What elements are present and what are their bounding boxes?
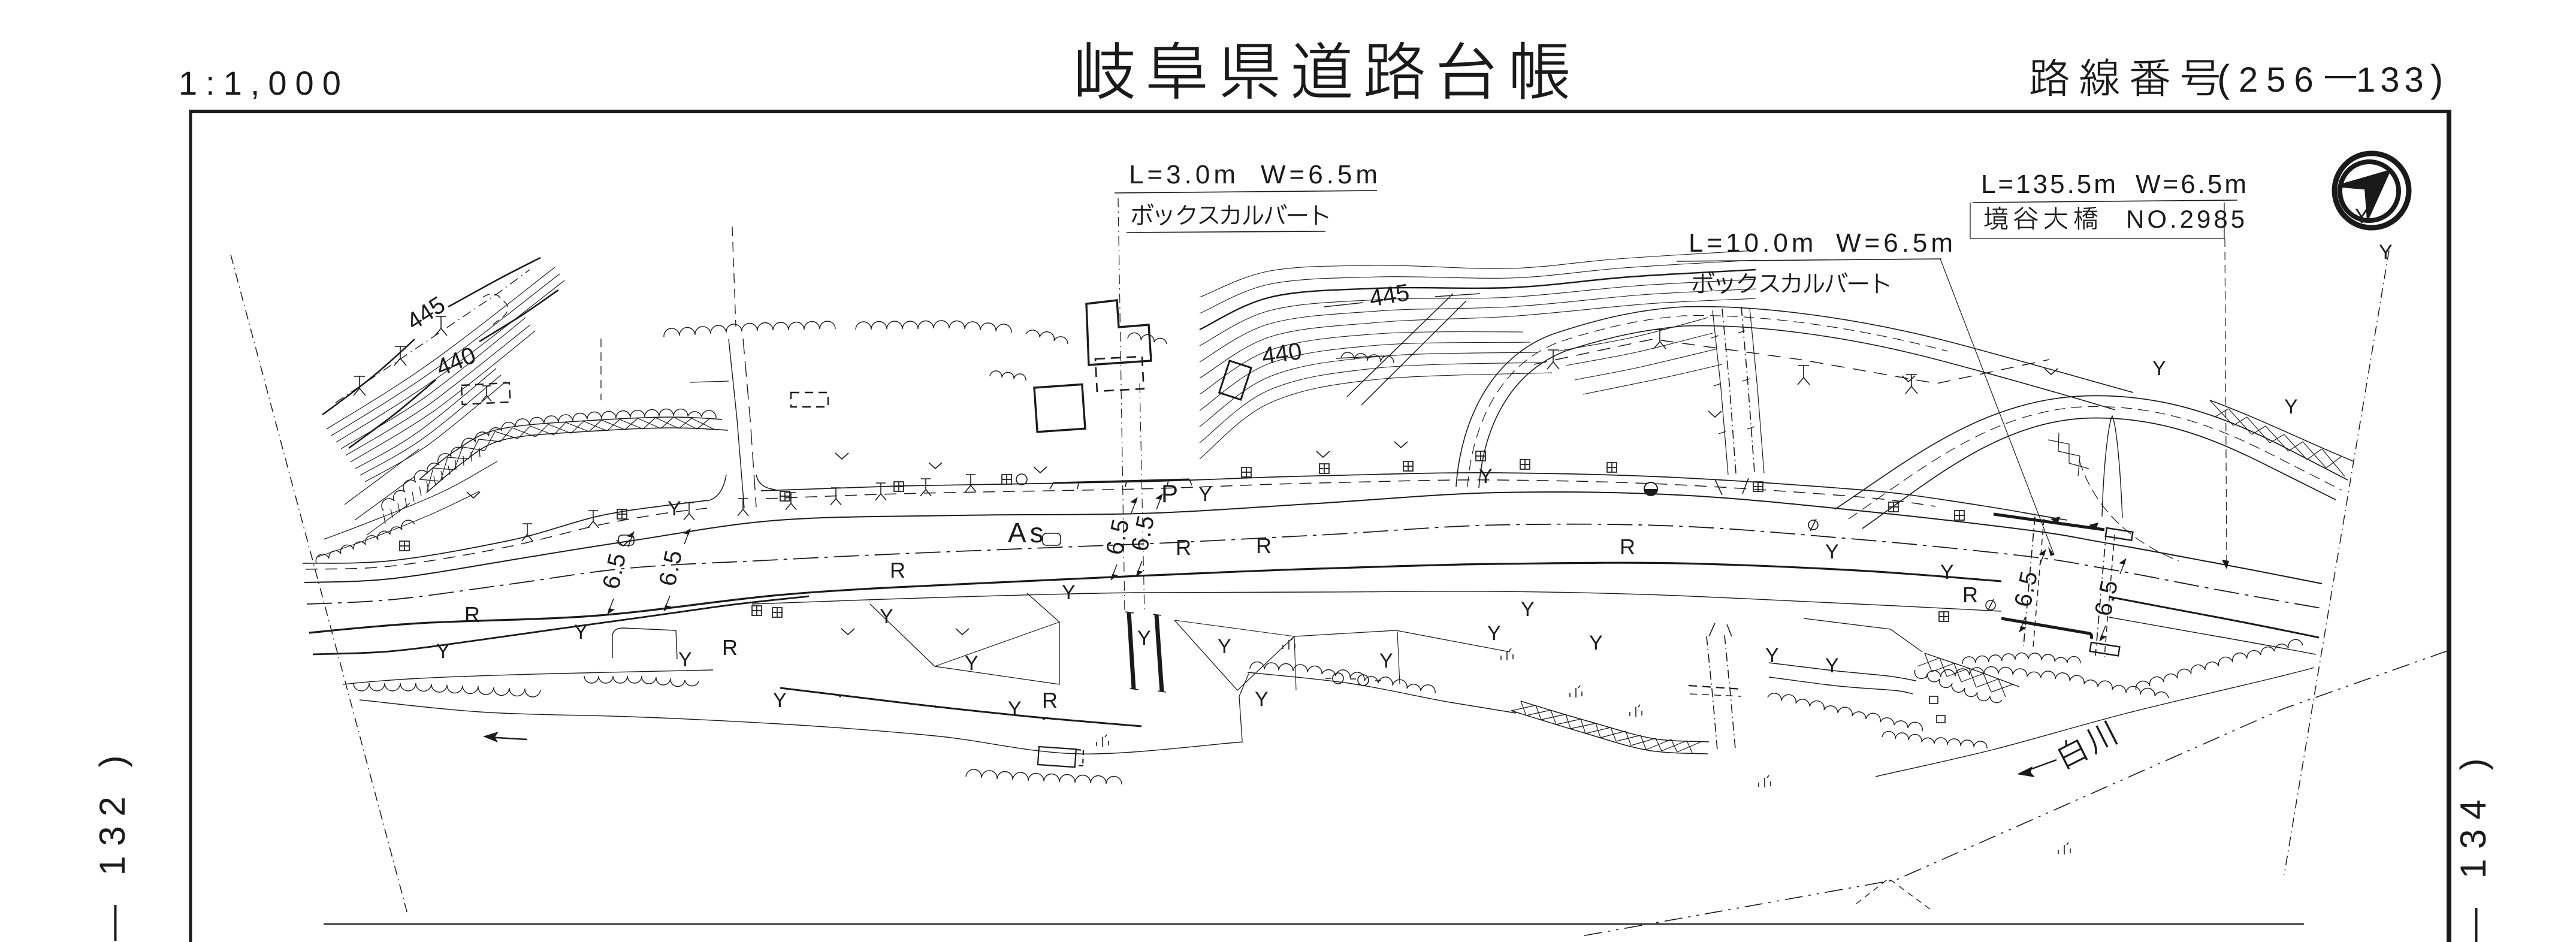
svg-text:Y: Y [965,652,979,675]
svg-text:Y: Y [678,648,692,671]
svg-text:L=135.5m: L=135.5m [1981,170,2118,199]
svg-text:Y: Y [1487,622,1501,645]
svg-text:R: R [1042,688,1058,712]
svg-text:R: R [1962,582,1978,607]
svg-text:Y: Y [880,605,893,628]
svg-text:Y: Y [1218,635,1231,658]
svg-text:256: 256 [2239,61,2322,99]
svg-text:440: 440 [1260,338,1303,370]
svg-text:Y: Y [1198,483,1212,506]
svg-text:Y: Y [1255,688,1269,711]
svg-text:Y: Y [436,640,450,663]
svg-text:Y: Y [1008,698,1022,720]
svg-text:Y: Y [668,497,681,520]
svg-text:P: P [1161,479,1178,508]
svg-text:R: R [1256,533,1272,558]
svg-text:Y: Y [1589,632,1603,654]
svg-text:R: R [890,558,905,582]
svg-text:Y: Y [2284,395,2298,418]
svg-text:Y: Y [1825,541,1839,563]
svg-text:Y: Y [1479,465,1493,488]
svg-text:NO.2985: NO.2985 [2126,205,2248,233]
svg-text:Y: Y [1825,654,1839,677]
svg-text:Y: Y [2152,357,2166,380]
svg-text:1:1,000: 1:1,000 [179,64,349,102]
svg-text:Y: Y [1379,650,1393,672]
svg-text:—: — [2325,58,2356,92]
svg-text:— 132 ): — 132 ) [92,746,132,941]
svg-text:R: R [722,635,738,660]
svg-text:Y: Y [574,621,588,644]
svg-text:W=6.5m: W=6.5m [2136,170,2249,199]
svg-text:R: R [1620,535,1635,559]
svg-text:(: ( [2217,57,2230,100]
svg-text:R: R [1176,535,1191,560]
svg-text:R: R [464,602,480,627]
svg-text:133: 133 [2356,61,2429,99]
svg-text:Y: Y [2355,205,2369,228]
svg-text:Y: Y [1062,581,1076,604]
svg-text:Y: Y [1765,644,1779,667]
svg-text:Y: Y [773,689,787,712]
svg-text:): ) [2430,57,2443,100]
svg-text:W=6.5m: W=6.5m [1261,160,1381,189]
svg-text:Y: Y [1137,627,1151,650]
svg-text:— 134 ): — 134 ) [2453,749,2493,942]
svg-text:Y: Y [1940,561,1954,584]
svg-text:W=6.5m: W=6.5m [1836,228,1956,258]
svg-text:Y: Y [1521,598,1535,621]
svg-text:As: As [1008,517,1047,548]
svg-text:L=3.0m: L=3.0m [1129,160,1239,189]
svg-text:Y: Y [2379,241,2393,264]
